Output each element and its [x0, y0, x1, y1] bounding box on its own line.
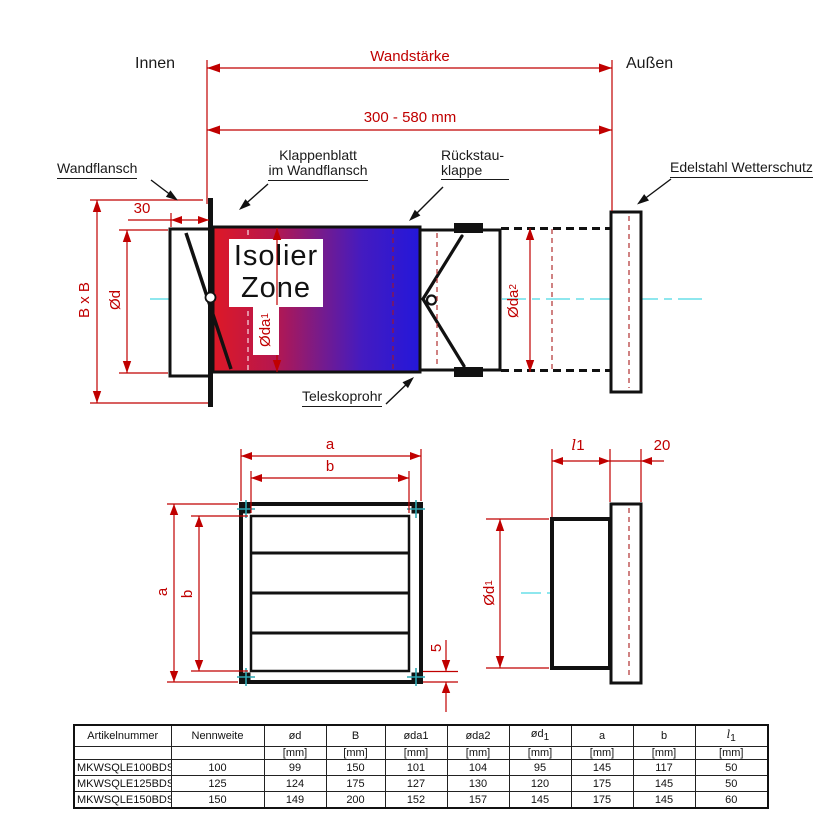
dim-b-horizontal: b — [320, 459, 340, 475]
backdraft-flap-hinge — [427, 296, 436, 305]
cell-artikelnummer: MKWSQLE125BDSI — [74, 776, 171, 792]
cell: 130 — [447, 776, 509, 792]
dim-oda1: Øda1 — [253, 305, 279, 355]
table-row: MKWSQLE150BDSI 150 149 200 152 157 145 1… — [74, 792, 768, 809]
technical-drawing-page: Innen Wandstärke Außen 300 - 580 mm Wand… — [0, 0, 838, 825]
cell: 99 — [264, 760, 326, 776]
label-wandstaerke: Wandstärke — [340, 49, 480, 65]
cell: 125 — [171, 776, 264, 792]
dim-5: 5 — [429, 640, 445, 656]
col-header: ød1 — [509, 725, 571, 747]
unit-cell — [171, 747, 264, 760]
cell: 127 — [385, 776, 447, 792]
col-header: øda2 — [447, 725, 509, 747]
flap-bracket-bottom — [454, 367, 483, 377]
label-edelstahl-wetterschutz: Edelstahl Wetterschutz — [670, 160, 813, 178]
label-wall-range: 300 - 580 mm — [330, 110, 490, 126]
label-rueckstau-line1: Rückstau- — [441, 147, 504, 163]
cell: 150 — [326, 760, 385, 776]
col-header: Artikelnummer — [74, 725, 171, 747]
dim-oda2: Øda2 — [505, 276, 523, 326]
dim-a-vertical: a — [155, 582, 171, 602]
table-row: MKWSQLE125BDSI 125 124 175 127 130 120 1… — [74, 776, 768, 792]
label-klappenblatt-line1: Klappenblatt — [279, 147, 357, 163]
specification-table: Artikelnummer Nennweite ød B øda1 øda2 ø… — [73, 724, 769, 809]
unit-cell: [mm] — [571, 747, 633, 760]
col-header: a — [571, 725, 633, 747]
side-view — [521, 504, 641, 683]
dim-bxb: B x B — [76, 268, 94, 332]
cap-flange — [611, 504, 641, 683]
table-header-row: Artikelnummer Nennweite ød B øda1 øda2 ø… — [74, 725, 768, 747]
dim-b-vertical: b — [180, 584, 196, 604]
label-isolier-line1: Isolier — [234, 240, 318, 272]
cell: 145 — [509, 792, 571, 809]
front-view — [237, 500, 425, 686]
cell: 101 — [385, 760, 447, 776]
cell: 145 — [633, 776, 695, 792]
col-header: ød — [264, 725, 326, 747]
cell: 175 — [571, 792, 633, 809]
col-header: øda1 — [385, 725, 447, 747]
cell: 145 — [633, 792, 695, 809]
flap-bracket-top — [454, 223, 483, 233]
label-rueckstauklappe: Rückstau- klappe — [441, 148, 509, 180]
label-aussen: Außen — [626, 56, 673, 73]
unit-cell: [mm] — [509, 747, 571, 760]
label-klappenblatt-line2: im Wandflansch — [268, 162, 367, 181]
label-innen: Innen — [135, 56, 175, 73]
dim-od1: Ød1 — [481, 566, 499, 620]
label-klappenblatt: Klappenblatt im Wandflansch — [258, 148, 378, 177]
unit-cell: [mm] — [385, 747, 447, 760]
cell: 117 — [633, 760, 695, 776]
cell: 124 — [264, 776, 326, 792]
cell: 60 — [695, 792, 768, 809]
col-header: Nennweite — [171, 725, 264, 747]
weather-cap — [611, 212, 641, 392]
cell: 175 — [326, 776, 385, 792]
unit-cell: [mm] — [447, 747, 509, 760]
dim-30: 30 — [128, 201, 156, 217]
col-header: b — [633, 725, 695, 747]
table-units-row: [mm] [mm] [mm] [mm] [mm] [mm] [mm] [mm] — [74, 747, 768, 760]
cell: 50 — [695, 760, 768, 776]
cell: 145 — [571, 760, 633, 776]
dim-od: Ød — [107, 280, 125, 320]
table-row: MKWSQLE100BDSI 100 99 150 101 104 95 145… — [74, 760, 768, 776]
unit-cell: [mm] — [264, 747, 326, 760]
dim-a-horizontal: a — [320, 437, 340, 453]
col-header: B — [326, 725, 385, 747]
dim-20: 20 — [646, 438, 678, 454]
unit-cell — [74, 747, 171, 760]
cell-artikelnummer: MKWSQLE150BDSI — [74, 792, 171, 809]
col-header: l1 — [695, 725, 768, 747]
cell: 200 — [326, 792, 385, 809]
cell: 100 — [171, 760, 264, 776]
cell: 104 — [447, 760, 509, 776]
cell-artikelnummer: MKWSQLE100BDSI — [74, 760, 171, 776]
unit-cell: [mm] — [633, 747, 695, 760]
cell: 175 — [571, 776, 633, 792]
cell: 149 — [264, 792, 326, 809]
flap-hinge — [206, 293, 216, 303]
unit-cell: [mm] — [326, 747, 385, 760]
cell: 50 — [695, 776, 768, 792]
cell: 157 — [447, 792, 509, 809]
label-rueckstau-line2: klappe — [441, 162, 482, 178]
dim-l1: l1 — [560, 438, 596, 454]
label-isolier-zone: Isolier Zone — [228, 240, 324, 304]
cell: 120 — [509, 776, 571, 792]
cell: 152 — [385, 792, 447, 809]
cap-tube — [552, 519, 610, 668]
label-wandflansch: Wandflansch — [57, 161, 137, 179]
label-isolier-line2: Zone — [241, 272, 311, 304]
cell: 150 — [171, 792, 264, 809]
label-teleskoprohr: Teleskoprohr — [302, 389, 382, 407]
cell: 95 — [509, 760, 571, 776]
unit-cell: [mm] — [695, 747, 768, 760]
